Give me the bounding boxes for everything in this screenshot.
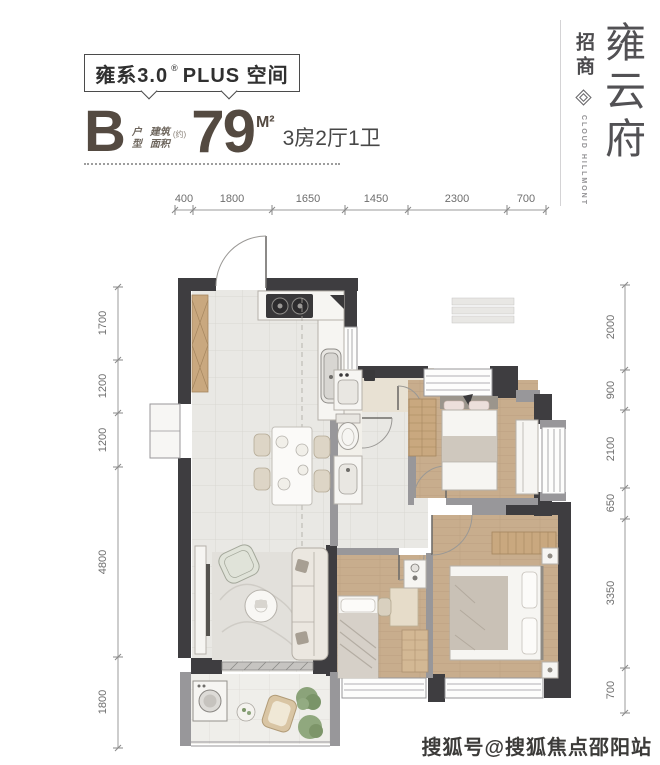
bedroom3-bay-window: [542, 427, 565, 494]
dim-label: 700: [517, 193, 535, 205]
title-plus: PLUS 空间: [183, 59, 289, 88]
desk-chair: [378, 598, 391, 616]
unit-type-label: 户 型: [132, 127, 142, 151]
dim-label: 1700: [97, 311, 109, 335]
layout-desc: 3房2厅1卫: [283, 122, 381, 152]
area-label-top: 建筑: [150, 127, 170, 139]
dim-label: 650: [605, 494, 617, 512]
shower-head-icon: [364, 370, 375, 381]
brand-cn-char: 云: [605, 68, 646, 116]
dining-chair: [314, 470, 330, 492]
sofa: [292, 548, 328, 660]
area-value: 79: [191, 107, 254, 156]
brand-developer: 招商: [570, 32, 597, 80]
kitchen-window: [344, 327, 357, 371]
exterior-louver: [452, 298, 514, 323]
brand-block: 招商 CLOUD HILLMONT 雍 云 府: [560, 20, 646, 206]
dim-label: 4800: [97, 550, 109, 574]
title-box: 雍系3.0® PLUS 空间: [84, 54, 300, 92]
tv-icon: [206, 564, 210, 636]
wardrobe: [409, 399, 436, 456]
bedroom3-bay-ledge: [424, 369, 492, 396]
title-series: 雍系3.0: [95, 59, 168, 88]
dim-label: 2000: [605, 315, 617, 339]
bed: [450, 566, 542, 660]
dining-chair: [314, 436, 330, 458]
dim-label: 1800: [97, 690, 109, 714]
dim-label: 1800: [220, 193, 244, 205]
window-seat: [516, 420, 538, 494]
unit-letter: B: [84, 107, 126, 156]
bedroom2-window: [342, 678, 426, 698]
area-unit: M²: [256, 114, 275, 132]
entry-door: [216, 236, 266, 288]
dining-chair: [254, 434, 270, 456]
brand-name-cn: 雍 云 府: [605, 20, 646, 206]
coffee-table: [245, 590, 277, 622]
dim-label: 1650: [296, 193, 320, 205]
tv-console: [195, 546, 206, 654]
brand-name-en: CLOUD HILLMONT: [580, 115, 587, 206]
dim-label: 1200: [97, 374, 109, 398]
dim-label: 3350: [605, 581, 617, 605]
dim-label: 2300: [445, 193, 469, 205]
area-approx: (约): [173, 129, 186, 140]
dim-label: 900: [605, 381, 617, 399]
header: 雍系3.0® PLUS 空间 B 户 型 建筑 面积 (约) 79 M² 3房2…: [84, 54, 381, 165]
unit-label-top: 户: [132, 127, 142, 139]
diamond-knot-logo-icon: [575, 89, 592, 106]
area-label-bottom: 面积: [150, 139, 170, 151]
registered-mark-icon: ®: [171, 63, 179, 73]
desk: [390, 588, 418, 626]
stove-icon: [266, 294, 313, 318]
brand-cn-char: 雍: [605, 20, 646, 68]
brand-left-column: 招商 CLOUD HILLMONT: [560, 20, 597, 206]
toilet-icon: [336, 414, 360, 450]
washing-machine-icon: [193, 681, 227, 721]
unit-spec: B 户 型 建筑 面积 (约) 79 M² 3房2厅1卫: [84, 102, 381, 156]
floorplan-page: 400 1800 1650 1450 2300 700 1700 1200 12…: [0, 0, 660, 765]
dim-label: 1450: [364, 193, 388, 205]
dim-label: 1200: [97, 428, 109, 452]
area-label: 建筑 面积: [150, 127, 170, 151]
bed: [440, 394, 498, 490]
dim-label: 2100: [605, 437, 617, 461]
shoe-cabinet: [192, 295, 208, 392]
master-window: [445, 678, 543, 698]
dining-chair: [254, 468, 270, 490]
brand-cn-char: 府: [605, 116, 646, 164]
watermark-text: 搜狐号@搜狐焦点邵阳站: [421, 731, 652, 760]
bed: [338, 596, 378, 678]
living-room: [195, 542, 328, 660]
dim-label: 700: [605, 681, 617, 699]
side-table: [237, 703, 255, 721]
vanity-sink-icon: [334, 456, 362, 504]
dim-label: 400: [175, 193, 193, 205]
unit-label-bottom: 型: [132, 139, 142, 151]
